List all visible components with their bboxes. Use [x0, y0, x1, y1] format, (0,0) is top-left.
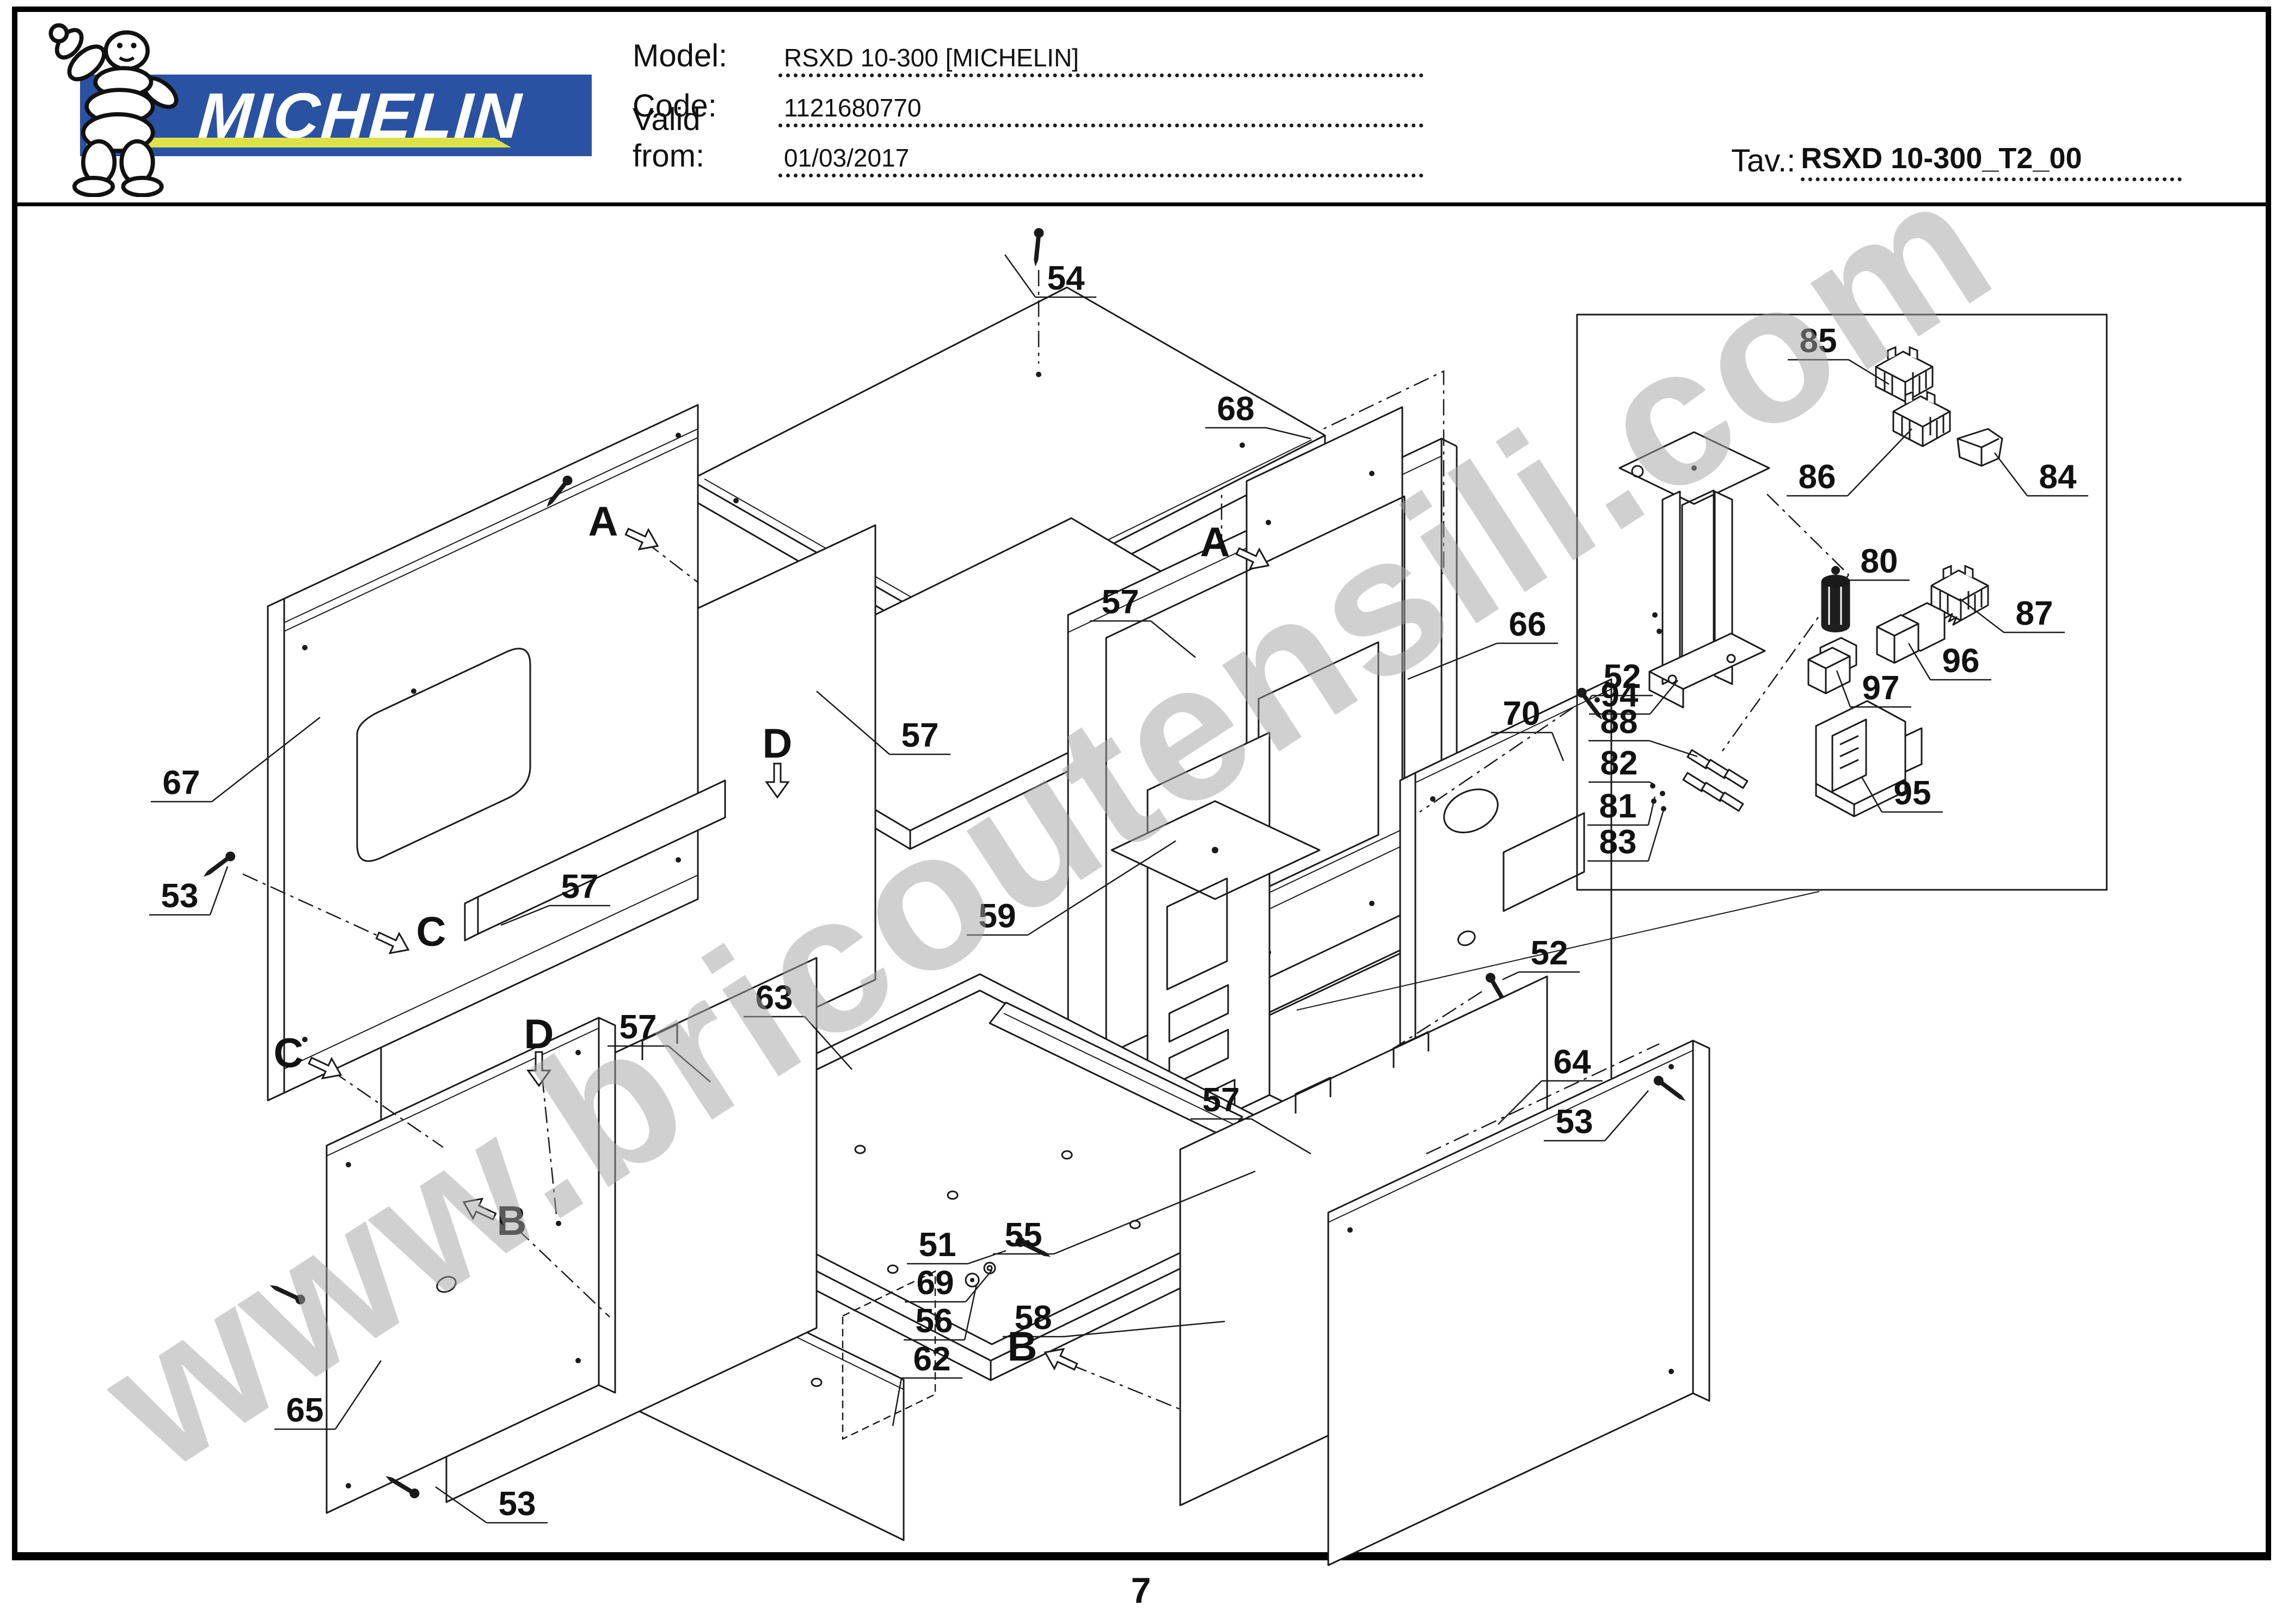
svg-text:C: C [416, 909, 446, 955]
svg-text:56: 56 [916, 1302, 953, 1340]
page-number: 7 [1131, 1570, 1151, 1610]
svg-text:C: C [274, 1030, 304, 1076]
footer: 7 [0, 1570, 2282, 1611]
svg-text:57: 57 [1203, 1081, 1240, 1119]
svg-text:A: A [588, 499, 618, 545]
terminal-set-88-82 [1683, 750, 1747, 811]
part-label-54: 54 [1005, 255, 1096, 297]
svg-text:81: 81 [1599, 788, 1637, 825]
svg-text:52: 52 [1531, 934, 1568, 972]
part-label-53: 53 [149, 866, 228, 915]
svg-text:62: 62 [913, 1340, 951, 1378]
direction-arrow-icon [1040, 1343, 1080, 1376]
svg-text:68: 68 [1217, 390, 1255, 428]
svg-text:57: 57 [1102, 583, 1139, 621]
svg-text:69: 69 [917, 1264, 954, 1302]
exploded-diagram: 5468576753575766527059526357655355516956… [0, 0, 2282, 1624]
svg-text:84: 84 [2039, 458, 2077, 496]
svg-text:86: 86 [1799, 458, 1836, 496]
svg-text:97: 97 [1862, 669, 1900, 707]
svg-text:82: 82 [1600, 745, 1638, 782]
svg-text:83: 83 [1599, 823, 1637, 861]
capacitor-80 [1821, 566, 1850, 632]
svg-text:51: 51 [919, 1226, 956, 1264]
svg-text:87: 87 [2016, 595, 2053, 632]
part-label-84: 84 [1995, 453, 2088, 496]
svg-text:55: 55 [1005, 1216, 1042, 1254]
svg-text:96: 96 [1942, 642, 1980, 680]
svg-text:95: 95 [1894, 774, 1931, 812]
clip-84 [1958, 429, 2002, 466]
catalog-page: MICHELIN [0, 0, 2282, 1624]
svg-text:B: B [1008, 1324, 1038, 1370]
svg-text:53: 53 [499, 1485, 536, 1523]
svg-text:64: 64 [1554, 1043, 1591, 1081]
svg-text:70: 70 [1503, 695, 1541, 733]
svg-text:57: 57 [561, 868, 599, 906]
svg-text:D: D [763, 721, 793, 767]
svg-text:53: 53 [1556, 1103, 1593, 1141]
svg-text:67: 67 [163, 764, 200, 802]
svg-text:A: A [1200, 519, 1230, 565]
part-label-80: 80 [1849, 543, 1910, 587]
svg-text:80: 80 [1861, 543, 1898, 580]
svg-text:57: 57 [901, 717, 939, 754]
svg-text:53: 53 [161, 877, 199, 915]
relay-97 [1808, 638, 1856, 693]
svg-text:54: 54 [1047, 260, 1085, 297]
svg-text:88: 88 [1600, 703, 1638, 741]
